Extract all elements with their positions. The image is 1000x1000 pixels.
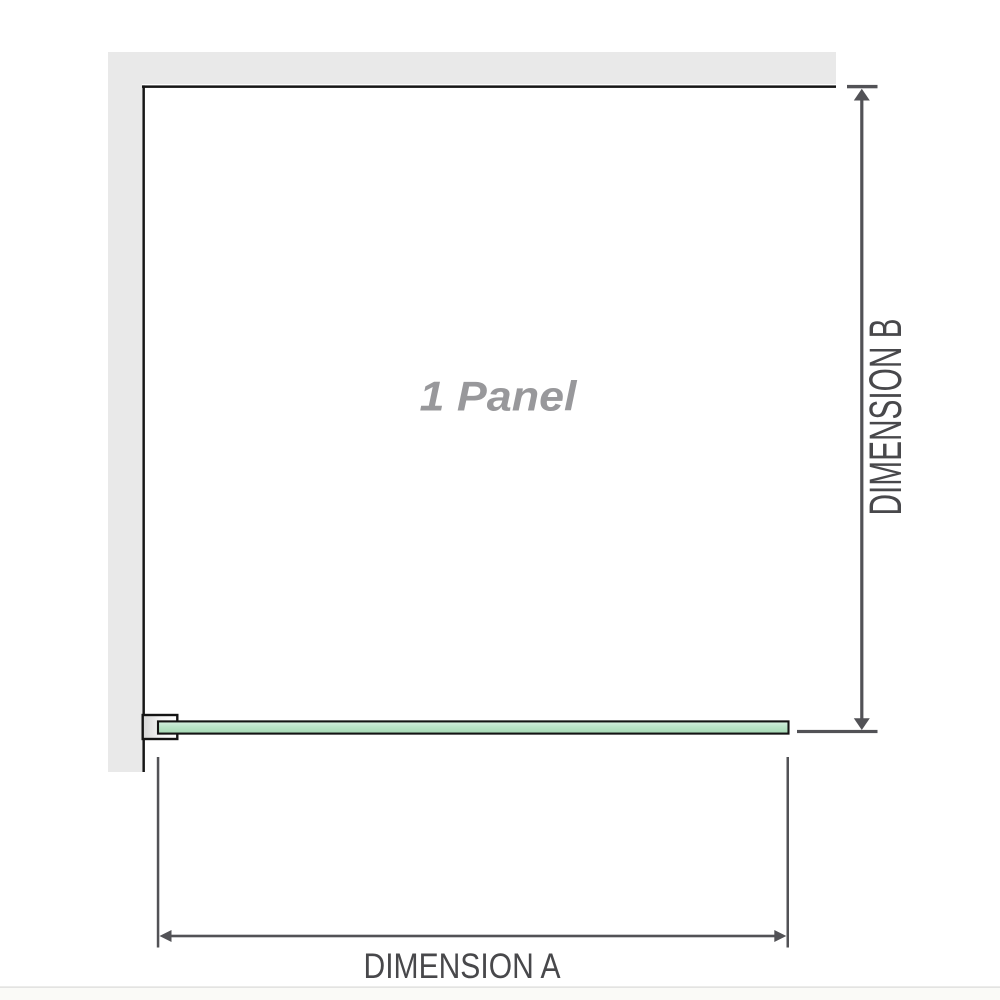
svg-text:DIMENSION A: DIMENSION A <box>364 947 562 986</box>
svg-text:1 Panel: 1 Panel <box>420 373 578 420</box>
svg-text:DIMENSION B: DIMENSION B <box>860 319 911 516</box>
